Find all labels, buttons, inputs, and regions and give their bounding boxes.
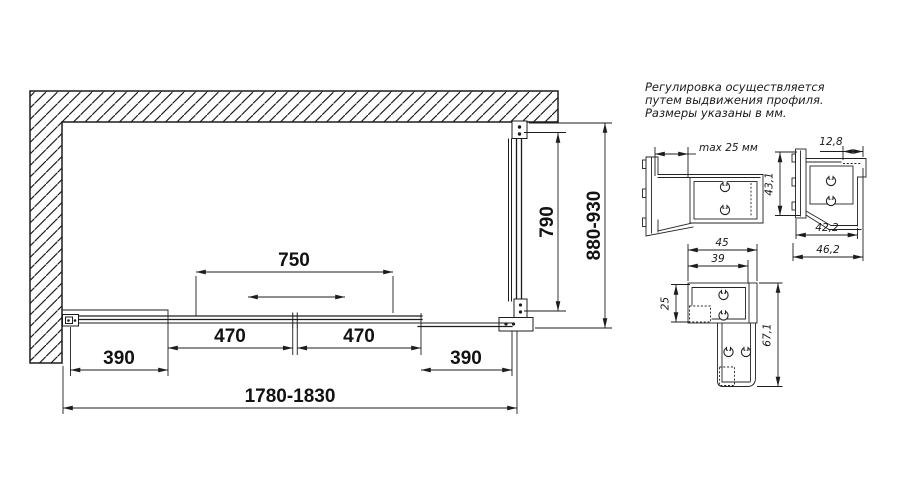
top-wall-bracket [512, 121, 527, 139]
detail-corner-profile-bottom: 45 39 25 67,1 [660, 237, 783, 387]
technical-drawing-canvas: 750 790 880-930 470 470 390 390 1780- [0, 0, 900, 500]
dim-750-label: 750 [278, 250, 310, 271]
arm-outer-width-label: 45 [715, 237, 729, 249]
dim-390-right-label: 390 [450, 348, 482, 369]
detail-wall-profile: max 25 мм [643, 142, 764, 236]
detail-corner-profile-top: 12,8 43,1 42,2 46,2 [764, 136, 867, 261]
dim-880-930-label: 880-930 [584, 191, 605, 261]
drawing-page: 750 790 880-930 470 470 390 390 1780- [0, 0, 900, 500]
note-line-1: Регулировка осуществляется [645, 80, 825, 94]
corner-height-label: 43,1 [764, 172, 776, 195]
outer-width-label: 46,2 [816, 244, 840, 256]
dim-390-left-label: 390 [103, 348, 135, 369]
note-line-3: Размеры указаны в мм. [645, 106, 787, 120]
arm-height-label: 25 [660, 297, 672, 311]
inner-width-label: 42,2 [815, 222, 839, 234]
dim-790-label: 790 [537, 206, 558, 238]
front-track-assembly [62, 310, 512, 327]
left-wall-bracket [63, 315, 79, 327]
dim-1780-1830-label: 1780-1830 [245, 386, 336, 407]
max-extension-label: max 25 мм [699, 142, 758, 154]
arm-inner-width-label: 39 [711, 253, 725, 265]
dimension-total-width: 1780-1830 [63, 331, 517, 414]
wall-hatched [30, 91, 558, 363]
dimension-fixed-panels: 390 390 [71, 327, 513, 376]
dim-470-right-label: 470 [343, 326, 375, 347]
dim-470-left-label: 470 [214, 326, 246, 347]
total-height-label: 67,1 [762, 323, 774, 346]
notch-width-label: 12,8 [819, 136, 843, 148]
dimension-side-glass: 790 [524, 133, 566, 312]
dimension-door-travel: 750 [196, 250, 393, 316]
note-line-2: путем выдвижения профиля. [645, 93, 824, 107]
side-panel-profile [499, 121, 533, 331]
adjustment-note: Регулировка осуществляется путем выдвиже… [645, 80, 825, 120]
